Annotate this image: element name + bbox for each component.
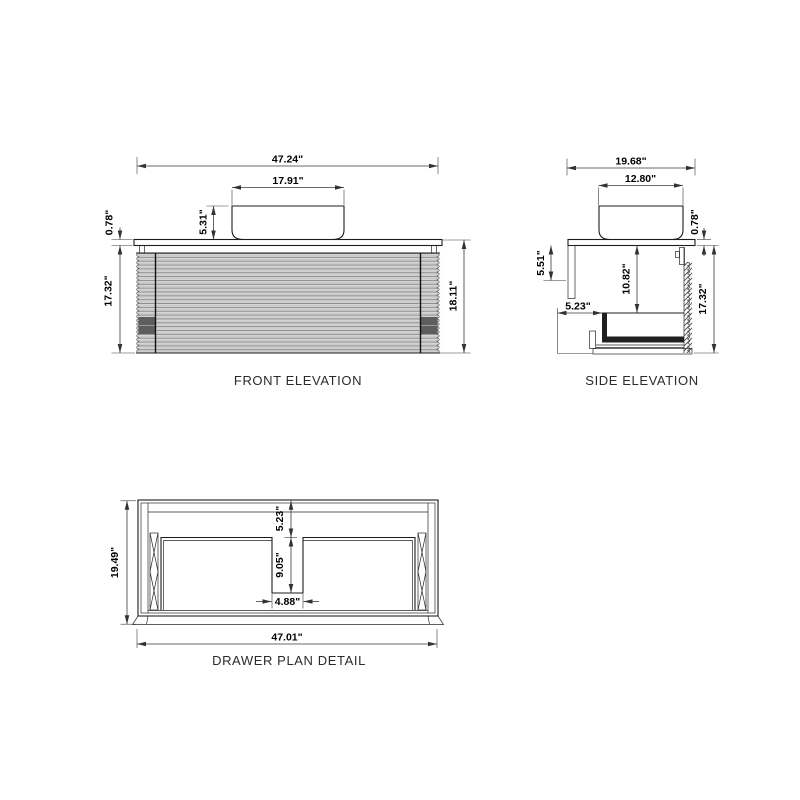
plan-dim-notch-width: 4.88" bbox=[256, 593, 319, 609]
front-vessel-sink bbox=[232, 206, 344, 240]
rear-support-block bbox=[590, 331, 596, 349]
dim-text-countertop: 0.78" bbox=[104, 210, 116, 235]
plan-view-title: DRAWER PLAN DETAIL bbox=[212, 653, 366, 668]
front-dim-sink-width: 17.91" bbox=[232, 175, 344, 205]
dim-text-cleat-height: 5.51" bbox=[535, 250, 547, 275]
dim-text-plan-width: 47.01" bbox=[271, 632, 302, 644]
wall-cleat-section bbox=[568, 246, 575, 299]
dim-text-sink-depth: 12.80" bbox=[625, 173, 656, 185]
bottom-panel-section bbox=[593, 349, 692, 355]
front-cabinet-body bbox=[134, 246, 442, 354]
drawer-bottom-section bbox=[602, 337, 684, 343]
dim-text-side-countertop: 0.78" bbox=[689, 209, 701, 234]
dim-text-interior-height: 10.82" bbox=[621, 263, 633, 294]
dim-text-drawer-depth: 5.23" bbox=[565, 301, 590, 313]
side-elevation-view: 19.68" 12.80" 0.78" 5.51" 10.82" 5.23" bbox=[535, 156, 719, 389]
plan-right-glide bbox=[418, 533, 426, 610]
plan-front-rail bbox=[133, 616, 444, 625]
dim-text-notch-width: 4.88" bbox=[275, 596, 300, 608]
plan-left-glide bbox=[150, 533, 158, 610]
side-dim-cabinet-height: 17.32" bbox=[694, 246, 719, 354]
vanity-drawing-svg: 47.24" 17.91" 5.31" 0.78" 17.32" bbox=[0, 0, 800, 800]
side-dim-cleat-height: 5.51" bbox=[535, 246, 566, 281]
side-vessel-sink bbox=[599, 206, 683, 240]
front-dim-overall-width: 47.24" bbox=[137, 154, 438, 175]
plan-dim-back-offset: 5.23" bbox=[274, 501, 297, 538]
front-dim-sink-height: 5.31" bbox=[198, 206, 229, 240]
side-dim-sink-depth: 12.80" bbox=[599, 173, 684, 205]
side-view-title: SIDE ELEVATION bbox=[585, 373, 698, 388]
dim-text-sink-width: 17.91" bbox=[272, 175, 303, 187]
front-view-title: FRONT ELEVATION bbox=[234, 373, 362, 388]
side-countertop bbox=[568, 240, 695, 246]
left-drawer-box bbox=[161, 538, 272, 611]
front-dim-overall-height: 18.11" bbox=[440, 240, 471, 353]
dim-text-plan-depth: 19.49" bbox=[109, 547, 121, 578]
dim-text-sink-height: 5.31" bbox=[198, 209, 210, 234]
left-fluted-edge bbox=[134, 253, 139, 353]
front-dim-cabinet-height: 17.32" bbox=[103, 246, 136, 354]
dim-text-back-offset: 5.23" bbox=[274, 506, 286, 531]
dim-text-overall-width: 47.24" bbox=[272, 154, 303, 166]
plan-dim-notch-depth: 9.05" bbox=[274, 538, 291, 594]
front-dim-countertop: 0.78" bbox=[104, 210, 133, 246]
technical-drawing-sheet: 47.24" 17.91" 5.31" 0.78" 17.32" bbox=[0, 0, 800, 800]
plan-dim-overall-depth: 19.49" bbox=[109, 501, 136, 624]
dim-text-notch-depth: 9.05" bbox=[274, 552, 286, 577]
dim-text-cabinet-height: 17.32" bbox=[103, 275, 115, 306]
dim-text-overall-height: 18.11" bbox=[448, 281, 460, 312]
plan-dim-overall-width: 47.01" bbox=[137, 629, 437, 648]
right-fluted-edge bbox=[437, 253, 442, 353]
right-drawer-box bbox=[303, 538, 415, 611]
front-panel-fluted-edge bbox=[687, 262, 692, 353]
side-dim-drawer-depth: 5.23" bbox=[558, 301, 603, 314]
front-elevation-view: 47.24" 17.91" 5.31" 0.78" 17.32" bbox=[103, 154, 471, 389]
dim-text-side-cabinet-height: 17.32" bbox=[697, 283, 709, 314]
side-dim-interior-height: 10.82" bbox=[621, 246, 638, 314]
front-countertop bbox=[134, 240, 442, 246]
dim-text-overall-depth: 19.68" bbox=[615, 156, 646, 168]
drawer-plan-view: 19.49" 5.23" 9.05" 4.88" 47.01" DRAWER P… bbox=[109, 500, 444, 668]
fluted-front-panel bbox=[138, 253, 438, 353]
